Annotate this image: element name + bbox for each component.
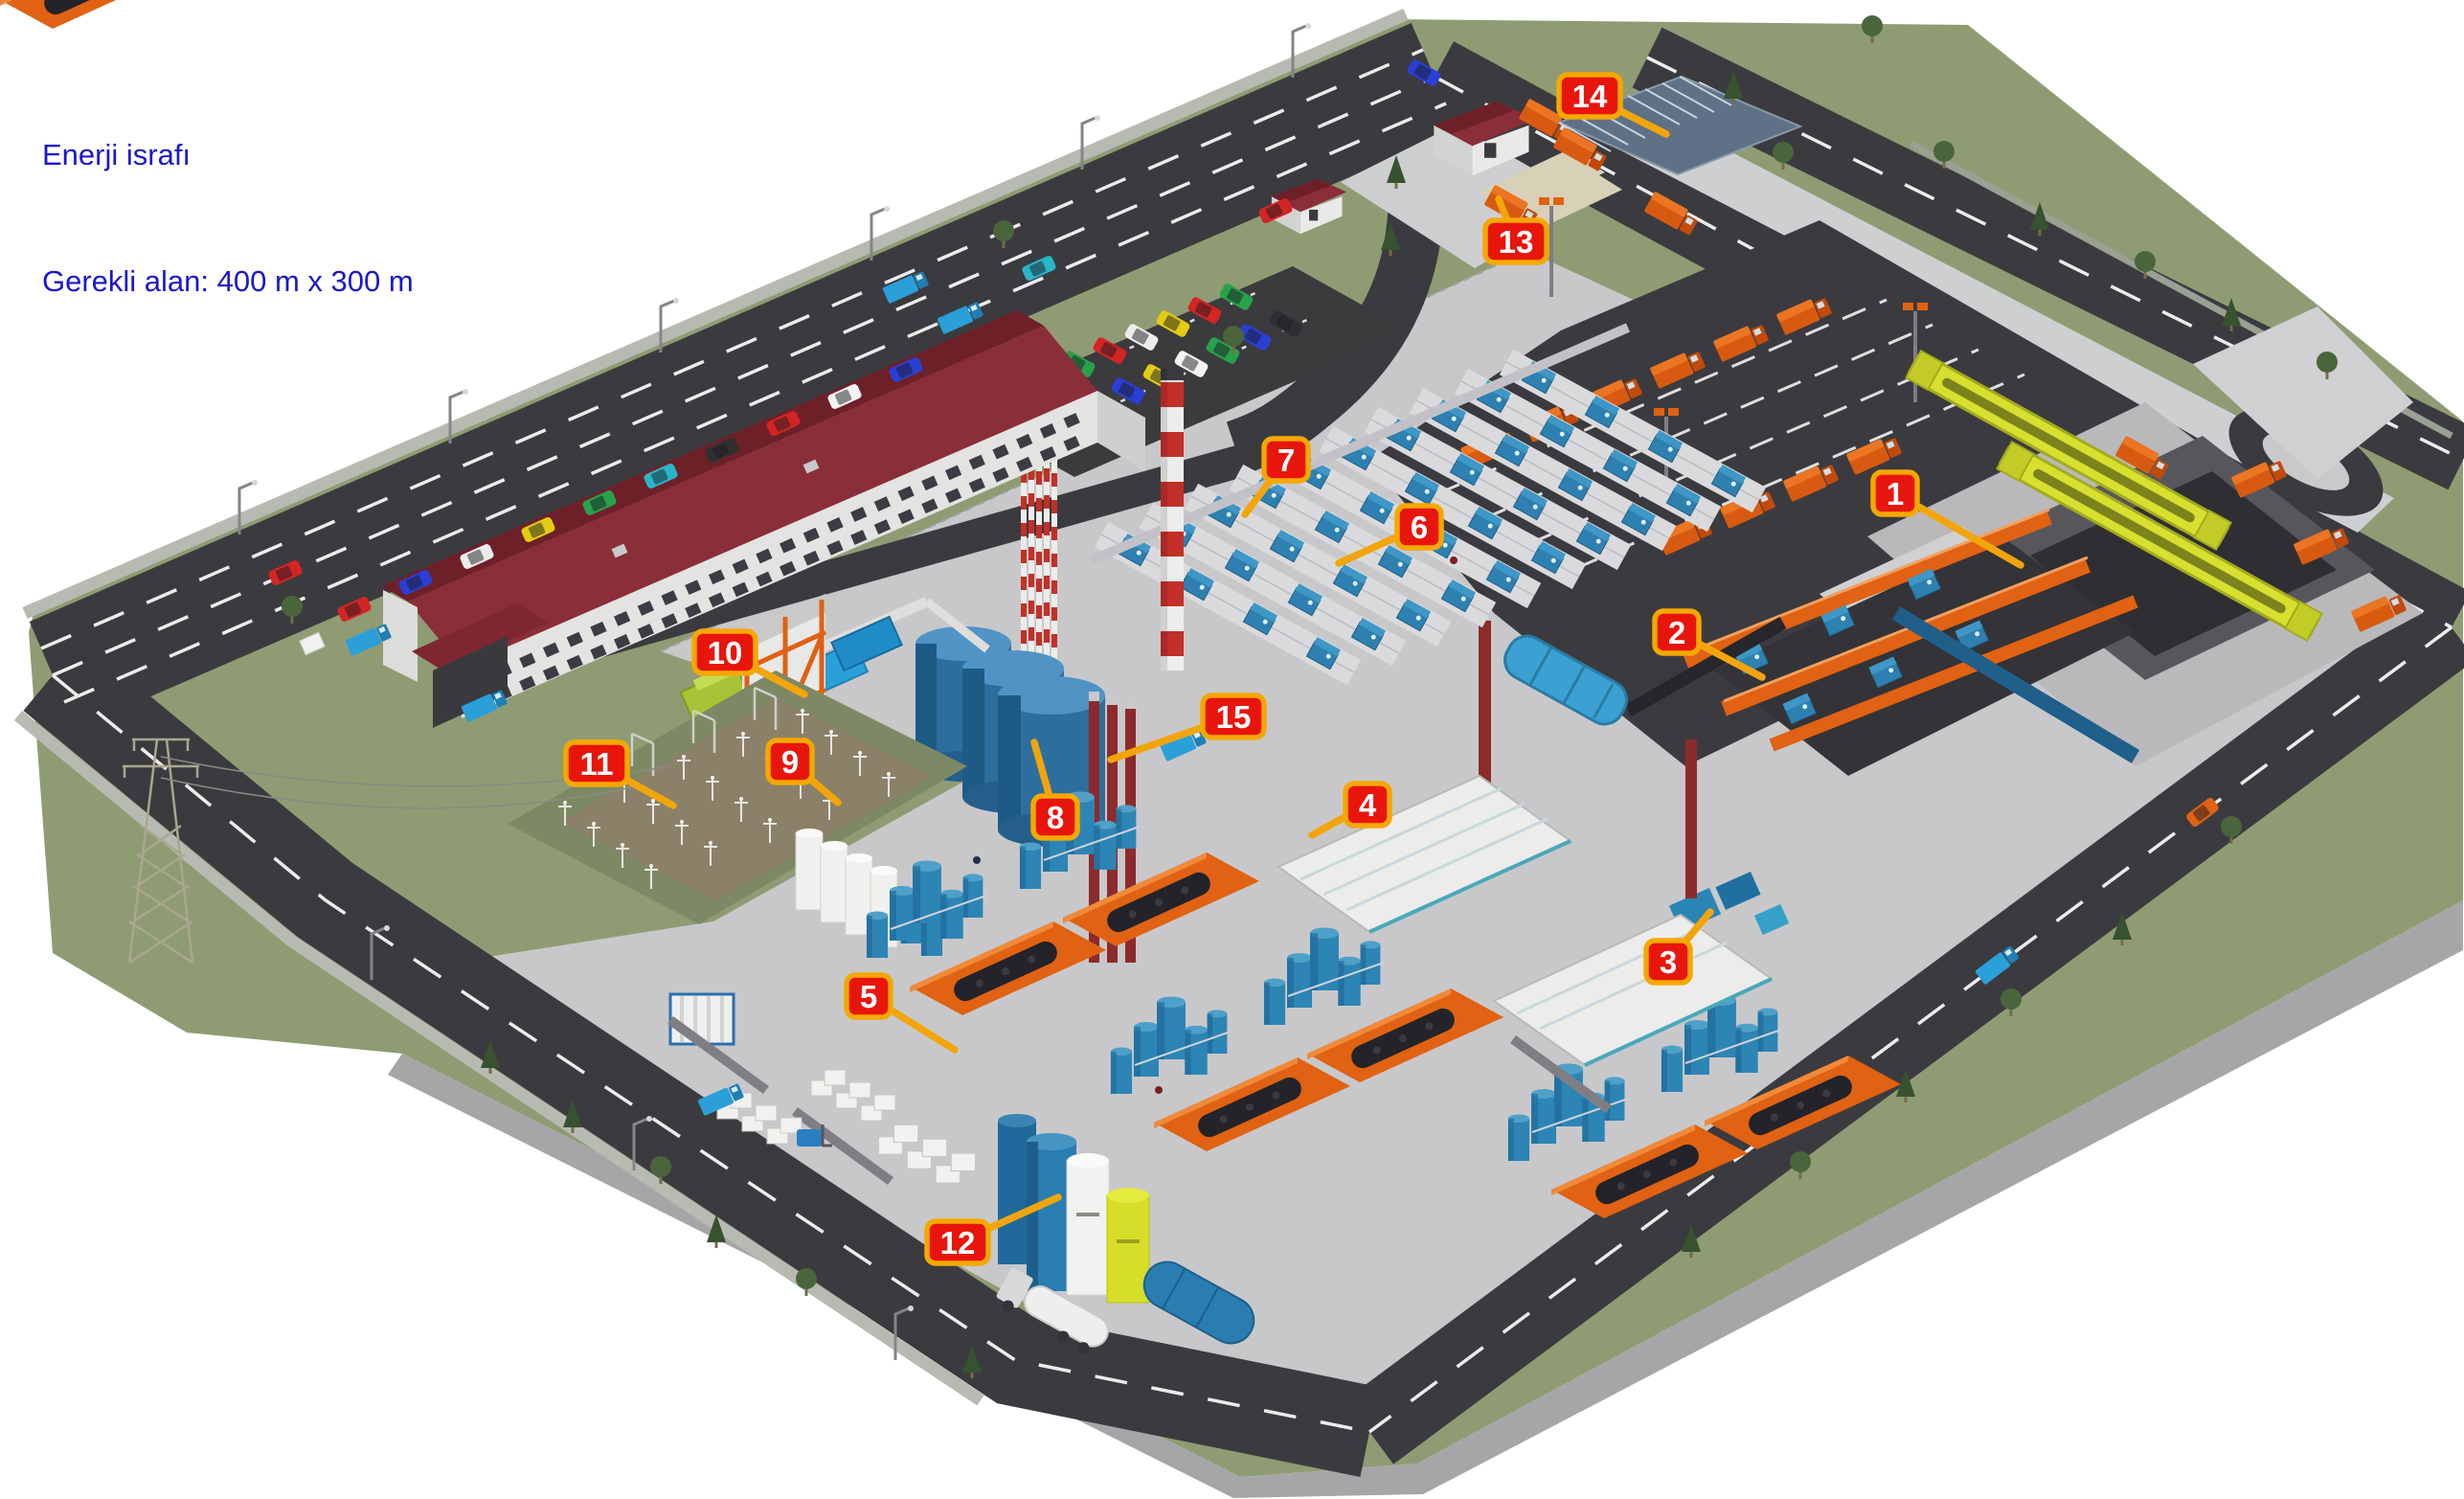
svg-text:10: 10 [708,635,743,670]
svg-text:6: 6 [1411,510,1428,545]
svg-text:7: 7 [1277,443,1295,478]
svg-text:1: 1 [1887,476,1904,511]
svg-text:9: 9 [781,744,799,780]
svg-text:8: 8 [1047,800,1064,835]
svg-text:5: 5 [860,979,877,1014]
svg-text:15: 15 [1216,699,1252,735]
svg-text:3: 3 [1660,944,1677,980]
chimney [1685,739,1697,898]
title-line-2: Gerekli alan: 400 m x 300 m [42,261,414,303]
svg-text:12: 12 [940,1225,976,1261]
svg-text:4: 4 [1359,787,1377,823]
svg-text:14: 14 [1572,79,1608,114]
svg-text:13: 13 [1499,224,1534,260]
facility-plan-screenshot: 1 2 3 4 5 6 7 8 9 10 11 12 13 14 15 Ener… [0,0,2464,1499]
chimney [1479,621,1491,793]
title-block: Enerji israfı Gerekli alan: 400 m x 300 … [42,50,414,345]
svg-text:2: 2 [1668,615,1685,650]
title-line-1: Enerji israfı [42,134,414,176]
main-striped-chimney [1161,369,1184,670]
pipe-rack [670,994,734,1044]
svg-text:11: 11 [580,746,614,782]
